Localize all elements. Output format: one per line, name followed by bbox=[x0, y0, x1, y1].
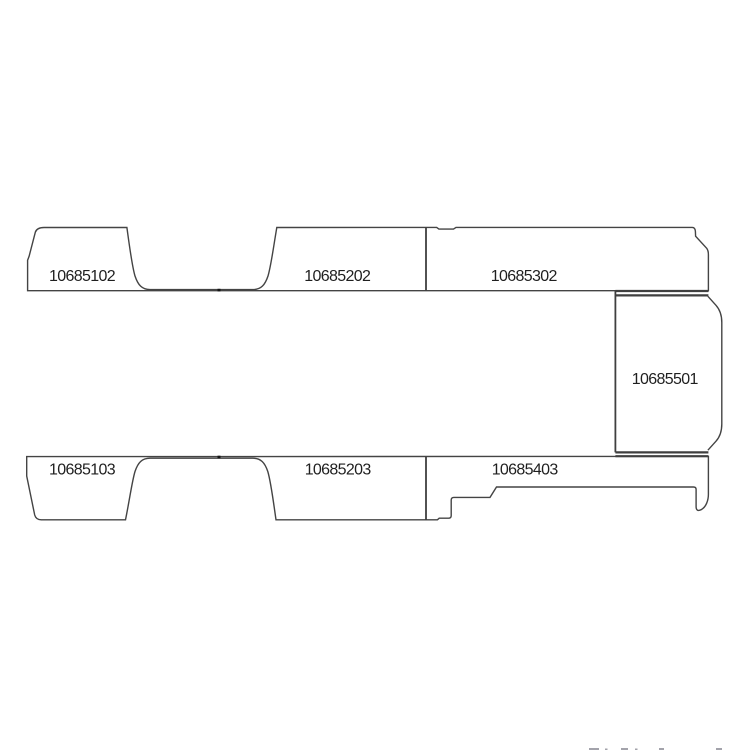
svg-text:10685202: 10685202 bbox=[304, 268, 371, 285]
svg-text:10685501: 10685501 bbox=[632, 371, 699, 388]
svg-text:10685403: 10685403 bbox=[492, 462, 559, 479]
svg-text:10685102: 10685102 bbox=[49, 268, 116, 285]
svg-text:10685203: 10685203 bbox=[305, 462, 372, 479]
svg-text:10685302: 10685302 bbox=[491, 268, 558, 285]
svg-text:10685103: 10685103 bbox=[49, 462, 116, 479]
